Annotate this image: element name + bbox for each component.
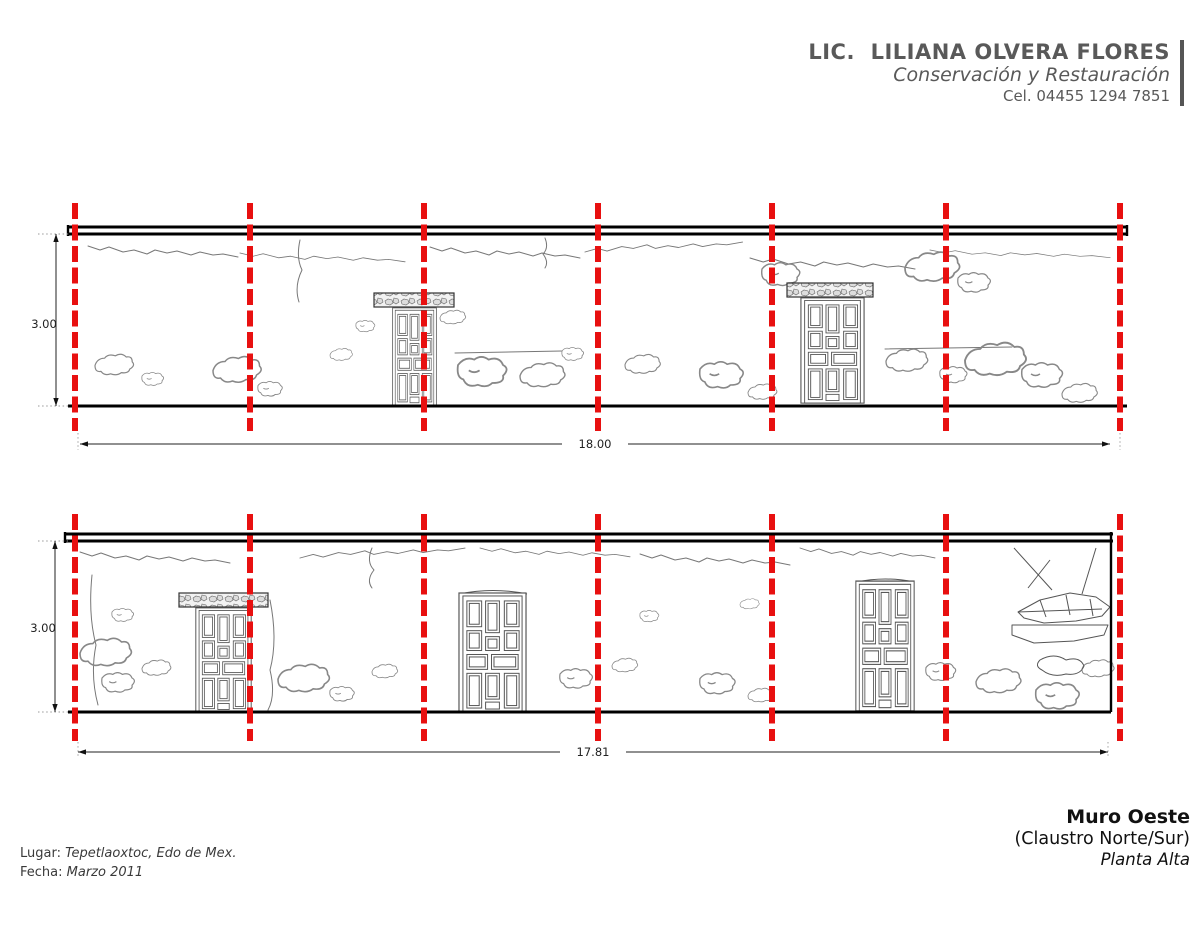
stone-rubble-lower-right	[1012, 548, 1110, 675]
elevation-drawings: 3.00 18.00	[0, 0, 1200, 927]
width-dim-label-lower: 17.81	[577, 745, 610, 759]
door-lower-3	[856, 579, 914, 711]
width-dim-label-upper: 18.00	[579, 437, 612, 451]
height-dim-label-lower: 3.00	[30, 621, 56, 635]
door-upper-2	[787, 283, 873, 403]
door-lower-1	[179, 593, 268, 712]
elevation-upper: 3.00 18.00	[31, 203, 1127, 451]
date-value: Marzo 2011	[67, 865, 144, 880]
date-label: Fecha:	[20, 865, 63, 880]
location-date-block: Lugar: Tepetlaoxtoc, Edo de Mex. Fecha: …	[20, 845, 236, 883]
sheet-subtitle: (Claustro Norte/Sur)	[1014, 829, 1190, 850]
location-label: Lugar:	[20, 846, 61, 861]
drawing-sheet: LIC. LILIANA OLVERA FLORES Conservación …	[0, 0, 1200, 927]
sheet-level: Planta Alta	[1014, 850, 1190, 871]
date-line: Fecha: Marzo 2011	[20, 864, 236, 883]
dimension-height-lower: 3.00	[30, 541, 68, 712]
door-lower-2	[459, 591, 527, 713]
dimension-height-upper: 3.00	[31, 234, 70, 406]
dimension-width-upper: 18.00	[78, 433, 1120, 451]
axis-grid-upper	[75, 203, 1120, 431]
location-line: Lugar: Tepetlaoxtoc, Edo de Mex.	[20, 845, 236, 864]
location-value: Tepetlaoxtoc, Edo de Mex.	[65, 846, 236, 861]
height-dim-label-upper: 3.00	[31, 317, 57, 331]
sheet-title: Muro Oeste	[1014, 806, 1190, 829]
dimension-width-lower: 17.81	[78, 742, 1108, 759]
elevation-lower: 3.00 17.81	[30, 514, 1120, 759]
door-upper-1	[374, 293, 454, 405]
sheet-title-block: Muro Oeste (Claustro Norte/Sur) Planta A…	[1014, 806, 1190, 870]
